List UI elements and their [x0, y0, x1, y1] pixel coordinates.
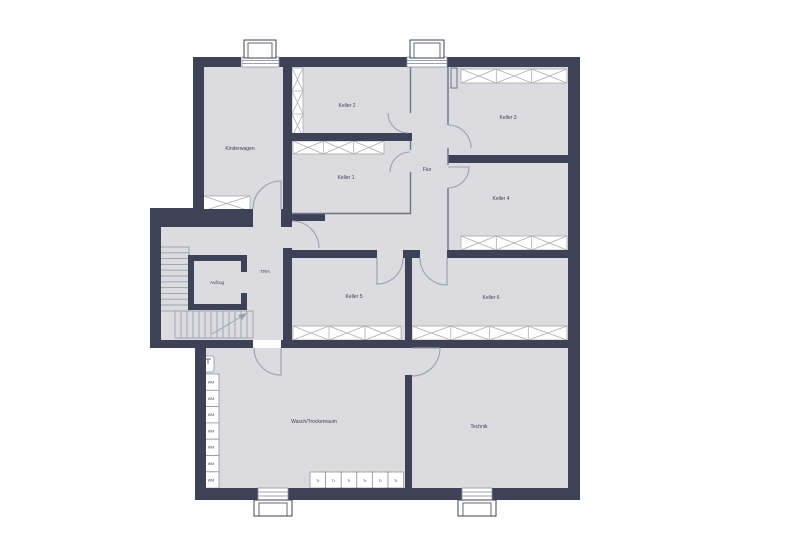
shelf-keller5 — [293, 326, 401, 340]
window-top-middle — [407, 40, 447, 67]
room-label-keller5: Keller 5 — [346, 294, 363, 300]
wall-keller56-top — [447, 250, 568, 258]
room-label-trh: TRH — [260, 269, 269, 274]
shelf-keller2-strip — [292, 68, 303, 137]
wm-label: WM — [208, 413, 214, 417]
wall-bottom — [492, 488, 580, 500]
room-label-kinderwagen: Kinderwagen — [225, 146, 254, 152]
wall-keller3-keller4 — [448, 155, 568, 163]
room-label-keller2: Keller 2 — [339, 103, 356, 109]
window-bottom-right — [458, 488, 496, 516]
shelf-keller3 — [461, 69, 567, 83]
wall-kinderwagen-bottom — [188, 209, 253, 227]
wall-right — [568, 57, 580, 500]
floor-plan-svg: WM WM WM WM WM WM WM Tr Tr Tr Tr Tr Tr — [0, 0, 794, 555]
wall-trh-right — [283, 248, 292, 340]
window-top-left — [242, 40, 279, 67]
wall-top — [447, 57, 580, 67]
wall-left-lower — [195, 340, 206, 500]
shelf-kinderwagen — [203, 196, 250, 211]
duct-element — [451, 68, 457, 88]
room-label-aufzug: Aufzug — [210, 280, 225, 285]
shelf-keller6 — [412, 326, 567, 340]
wall-bottom — [288, 488, 462, 500]
wm-label: WM — [208, 462, 214, 466]
room-label-keller1: Keller 1 — [338, 175, 355, 181]
floor-lower-band — [202, 348, 568, 488]
wall-left-upper — [193, 57, 204, 221]
window-bottom-left — [254, 488, 292, 516]
room-label-technik: Technik — [471, 424, 488, 430]
wall-wasch-technik — [405, 375, 412, 488]
wm-label: WM — [208, 446, 214, 450]
wm-label: WM — [208, 381, 214, 385]
shelf-keller4 — [461, 236, 567, 250]
wall-band-bottom — [281, 340, 580, 348]
wm-label: WM — [208, 397, 214, 401]
floor-plan-page: WM WM WM WM WM WM WM Tr Tr Tr Tr Tr Tr — [0, 0, 794, 555]
wm-label: WM — [208, 429, 214, 433]
wall-keller56-top — [403, 250, 420, 258]
room-label-keller4: Keller 4 — [493, 196, 510, 202]
dryers: Tr Tr Tr Tr Tr Tr — [310, 472, 404, 488]
wm-label: WM — [208, 478, 214, 482]
wall-kinderwagen-right — [283, 57, 292, 227]
wall-band-bottom — [150, 340, 253, 348]
wall-keller1-keller2 — [292, 133, 412, 141]
wall-keller5-keller6 — [405, 258, 412, 340]
wall-keller56-top — [283, 250, 377, 258]
wall-top — [279, 57, 407, 67]
room-label-wasch: Wasch/Trockenraum — [291, 419, 337, 425]
floor-areas — [161, 67, 568, 488]
floor-upper-band — [204, 67, 568, 227]
room-label-keller6: Keller 6 — [483, 295, 500, 301]
room-label-flur: Flur — [423, 167, 432, 173]
room-label-keller3: Keller 3 — [500, 115, 517, 121]
shelf-keller1 — [293, 141, 384, 154]
wall-left-middle — [150, 208, 161, 348]
